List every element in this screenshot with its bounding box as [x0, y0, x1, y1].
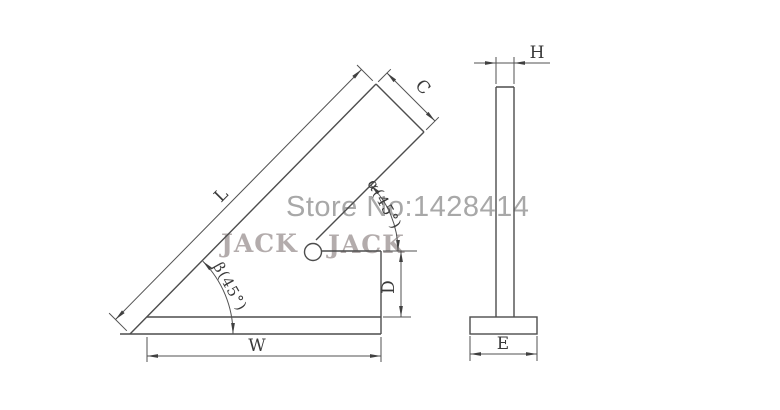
C-arrow-outer	[387, 73, 396, 82]
dimension-H: H	[474, 43, 550, 84]
C-arrow-inner	[426, 112, 435, 121]
H-arrow-right	[514, 61, 525, 65]
H-arrow-left	[485, 61, 496, 65]
L-arrow-lower	[116, 310, 125, 319]
dim-label-H: H	[530, 43, 545, 63]
angle-label-beta: β(45°)	[210, 259, 251, 314]
dim-label-D: D	[379, 280, 399, 294]
W-arrow-right	[370, 354, 381, 358]
L-arrow-upper	[352, 70, 361, 79]
dim-label-E: E	[497, 334, 509, 354]
L-extension-upper	[357, 65, 373, 81]
beta-arrow-lower	[231, 323, 235, 334]
dim-label-L: L	[210, 184, 232, 206]
E-arrow-right	[526, 352, 537, 356]
dimension-C: C	[378, 69, 439, 130]
drawing-canvas: JACK JACK Store No:1428414 L	[0, 0, 780, 410]
E-arrow-left	[470, 352, 481, 356]
D-arrow-bottom	[399, 306, 403, 317]
L-extension-lower	[109, 313, 127, 331]
W-arrow-left	[147, 354, 158, 358]
dimension-D: D	[379, 251, 417, 317]
dimension-W: W	[147, 336, 381, 362]
dimension-beta-angle: β(45°)	[203, 259, 251, 334]
relief-hole	[305, 244, 322, 261]
brand-watermark-left: JACK	[219, 229, 298, 258]
dim-label-W: W	[248, 336, 266, 356]
store-number-watermark: Store No:1428414	[286, 191, 529, 223]
product-technical-drawing: JACK JACK Store No:1428414 L	[0, 0, 780, 410]
dim-label-C: C	[411, 76, 434, 99]
side-base-block	[470, 317, 537, 334]
front-view: L C β(45°) α(45°)	[109, 65, 439, 362]
dimension-E: E	[470, 334, 537, 361]
brand-watermark-right: JACK	[326, 230, 405, 259]
